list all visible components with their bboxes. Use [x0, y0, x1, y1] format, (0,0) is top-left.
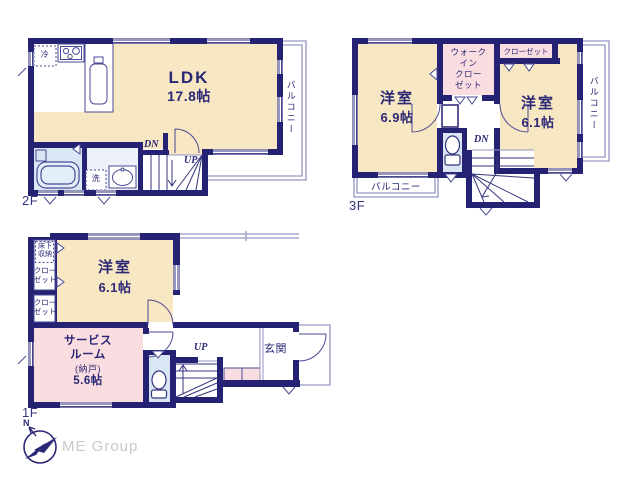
service-room-name: サービス ルーム: [53, 334, 123, 363]
bedroom-left-name-3f: 洋室: [363, 90, 431, 108]
north-label: N: [23, 418, 30, 429]
ldk-room-name: LDK: [158, 68, 220, 88]
bedroom-size-1f: 6.1帖: [82, 280, 148, 296]
laundry-label: 洗: [86, 174, 106, 184]
stove-icon: [58, 44, 84, 62]
closet-upper-label-1f: クロー ゼット: [33, 266, 57, 284]
entrance-label: 玄関: [264, 343, 287, 356]
service-room-size: 5.6帖: [53, 375, 123, 389]
balcony-bottom-label-3f: バルコニー: [360, 182, 432, 193]
balcony-label-2f: バルコニー: [285, 80, 296, 135]
bedroom-right-size-3f: 6.1帖: [504, 115, 572, 131]
company-logo-text: ME Group: [62, 438, 138, 456]
walk-in-closet-label: ウォーク イン クロー ゼット: [443, 47, 494, 91]
service-room-sub: (納戸): [53, 364, 123, 375]
toilet-icon-1f: [152, 371, 167, 398]
wash-basin-icon: [109, 166, 136, 188]
stairs-up-label-2f: UP: [184, 155, 197, 167]
floor-label-3f: 3F: [349, 198, 365, 214]
stairs-down-label-2f: DN: [144, 139, 158, 151]
floor-label-2f: 2F: [22, 193, 38, 209]
balcony-right-label-3f: バルコニー: [588, 76, 599, 131]
bedroom-left-size-3f: 6.9帖: [363, 110, 431, 126]
floor-plan-drawing: [0, 0, 640, 480]
closet-label-3f: クローゼット: [500, 47, 552, 56]
toilet-icon-3f: [445, 136, 460, 165]
bedroom-right-name-3f: 洋室: [504, 95, 572, 113]
underfloor-storage-label: 床下 収納: [33, 243, 57, 260]
stairs-down-label-3f: DN: [474, 134, 488, 146]
closet-lower-label-1f: クロー ゼット: [33, 298, 57, 316]
floor-2f-plan: [18, 38, 306, 204]
ldk-room-size: 17.8帖: [148, 88, 230, 105]
bedroom-name-1f: 洋室: [82, 259, 148, 277]
compass-icon: [24, 427, 57, 463]
fridge-label: 冷: [34, 50, 56, 60]
kitchen-counter-icon: [85, 44, 113, 112]
stairs-up-label-1f: UP: [194, 342, 207, 354]
reference-lines-1f: [180, 231, 330, 385]
floor-plan-canvas: LDK 17.8帖 バルコニー 冷 洗 DN UP 2F 洋室 6.9帖 ウォー…: [0, 0, 640, 480]
